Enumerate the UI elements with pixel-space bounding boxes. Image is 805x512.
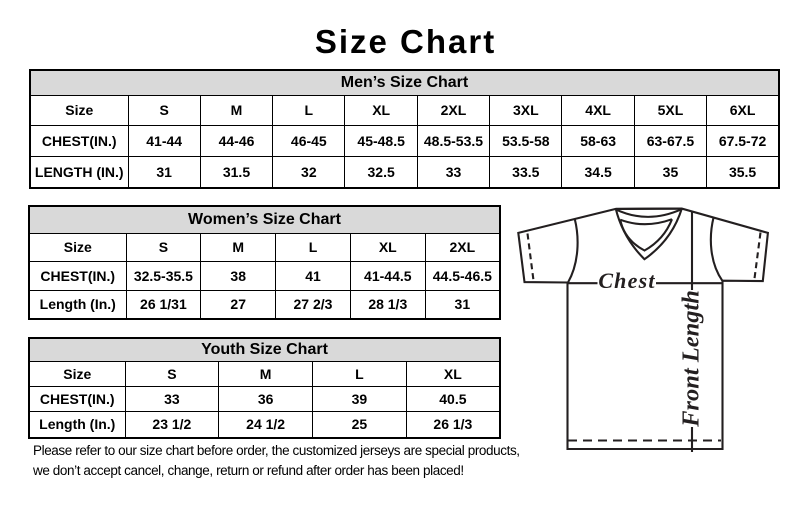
svg-text:Front Length: Front Length	[678, 290, 705, 428]
svg-text:Chest: Chest	[598, 268, 655, 293]
